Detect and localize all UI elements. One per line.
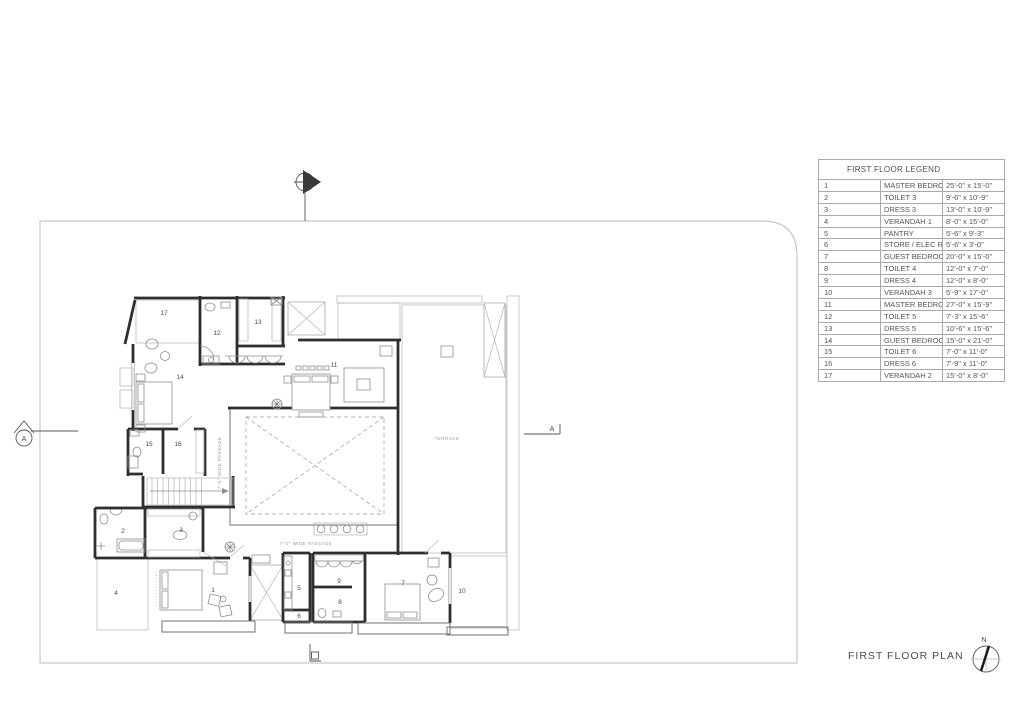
planter-strip-top [337, 296, 482, 303]
room-number: 10 [458, 588, 466, 595]
legend-cell: 11 [819, 298, 881, 310]
wc [133, 447, 141, 457]
legend-cell: PANTRY [881, 227, 943, 239]
armchair [214, 562, 227, 574]
legend-cell: 4 [819, 215, 881, 227]
legend-cell: VERANDAH 2 [881, 370, 943, 382]
legend-cell: DRESS 5 [881, 322, 943, 334]
legend-cell: 20'-0" x 15'-0" [943, 251, 1005, 263]
legend-cell: TOILET 4 [881, 263, 943, 275]
room-number: 2 [121, 528, 125, 535]
north-needle [981, 646, 989, 671]
legend-cell: TOILET 5 [881, 310, 943, 322]
section-marker-right: A [524, 424, 560, 434]
legend-cell: 10'-6" x 15'-6" [943, 322, 1005, 334]
room-number: 5 [297, 585, 301, 592]
wardrobe [148, 509, 200, 516]
legend-row: 3DRESS 313'-0" x 10'-9" [819, 203, 1005, 215]
legend-row: 17VERANDAH 215'-0" x 8'-0" [819, 370, 1005, 382]
passage-label-horizontal: 7'-0" WIDE PASSAGE [280, 541, 333, 546]
chair [380, 346, 392, 356]
legend-cell: 7'-0" x 11'-0" [943, 346, 1005, 358]
legend-row: 2TOILET 39'-6" x 10'-9" [819, 191, 1005, 203]
legend-cell: 27'-0" x 15'-9" [943, 298, 1005, 310]
room-number: 6 [297, 613, 301, 620]
basin [221, 302, 230, 308]
legend-cell: MASTER BEDROOM 3 [881, 180, 943, 192]
wardrobe [196, 430, 204, 473]
plan-title: FIRST FLOOR PLAN [848, 650, 964, 662]
legend-title: FIRST FLOOR LEGEND [819, 160, 1005, 180]
planter-strip-right [507, 296, 519, 630]
wardrobe [239, 299, 248, 341]
legend-cell: 8'-0" x 15'-0" [943, 215, 1005, 227]
basin [130, 430, 139, 436]
north-arrow: N [971, 635, 1001, 673]
lounge-chair [426, 586, 446, 604]
legend-cell: 3 [819, 203, 881, 215]
legend-cell: 8 [819, 263, 881, 275]
section-marker-left: A [14, 421, 78, 446]
wardrobe [315, 555, 363, 561]
verandah-1-deck [97, 558, 148, 630]
legend-cell: VERANDAH 1 [881, 215, 943, 227]
room-number: 9 [337, 578, 341, 585]
bed [385, 584, 420, 620]
basin [333, 611, 341, 617]
legend-row: 14GUEST BEDROOM 215'-0" x 21'-0" [819, 334, 1005, 346]
room-number: 1 [211, 587, 215, 594]
legend-cell: 1 [819, 180, 881, 192]
legend-cell: 5'-9" x 17'-0" [943, 287, 1005, 299]
room-number: 12 [213, 330, 221, 337]
legend-cell: 15'-0" x 8'-0" [943, 370, 1005, 382]
legend-cell: DRESS 6 [881, 358, 943, 370]
room-number: 7 [401, 580, 405, 587]
drawing-sheet: A A [0, 0, 1024, 724]
vanity-basins [225, 356, 283, 363]
legend-cell: TOILET 3 [881, 191, 943, 203]
shower-head [97, 542, 105, 550]
room-number: 11 [331, 362, 338, 369]
legend-row: 15TOILET 67'-0" x 11'-0" [819, 346, 1005, 358]
verandah-2-paving [136, 300, 200, 343]
legend-row: 4VERANDAH 18'-0" x 15'-0" [819, 215, 1005, 227]
legend-cell: 2 [819, 191, 881, 203]
shower-tray [128, 456, 138, 468]
bed-bench [299, 412, 323, 417]
legend-title-row: FIRST FLOOR LEGEND [819, 160, 1005, 180]
legend-cell: 12 [819, 310, 881, 322]
chair [208, 594, 221, 606]
section-marker-top [294, 170, 321, 221]
bed [160, 570, 202, 610]
legend-cell: 7'-3" x 15'-6" [943, 310, 1005, 322]
legend-cell: 9'-6" x 10'-9" [943, 191, 1005, 203]
legend-row: 9DRESS 412'-0" x 8'-0" [819, 275, 1005, 287]
legend-table: FIRST FLOOR LEGEND 1MASTER BEDROOM 325'-… [818, 159, 1005, 382]
legend-cell: 12'-0" x 8'-0" [943, 275, 1005, 287]
legend-row: 11MASTER BEDROOM 427'-0" x 15'-9" [819, 298, 1005, 310]
legend-cell: 6 [819, 239, 881, 251]
legend-cell: 5 [819, 227, 881, 239]
room-number: 3 [179, 527, 183, 534]
hanger-rod [316, 561, 362, 567]
legend-cell: TOILET 6 [881, 346, 943, 358]
room-number: 14 [176, 374, 184, 381]
room-number: 4 [114, 590, 118, 597]
legend-cell: 14 [819, 334, 881, 346]
legend-row: 5PANTRY5'-6" x 9'-3" [819, 227, 1005, 239]
legend-cell: 15 [819, 346, 881, 358]
wc [205, 303, 215, 311]
section-marker-bottom [310, 644, 321, 661]
plan-labels: 7'-0" WIDE PASSAGE 7'-0" WIDE PASSAGE TE… [217, 436, 459, 546]
chair [428, 558, 439, 567]
section-letter-left: A [22, 436, 27, 443]
legend-row: 13DRESS 510'-6" x 15'-6" [819, 322, 1005, 334]
legend-cell: 13'-0" x 10'-9" [943, 203, 1005, 215]
bed [292, 374, 330, 410]
legend-cell: 12'-0" x 7'-0" [943, 263, 1005, 275]
legend-cell: 13 [819, 322, 881, 334]
wall-pier [120, 368, 133, 386]
legend-cell: MASTER BEDROOM 4 [881, 298, 943, 310]
side-table [161, 352, 170, 361]
passage-label-vertical: 7'-0" WIDE PASSAGE [217, 437, 222, 490]
room-number: 16 [174, 441, 182, 448]
skylight-panels [250, 302, 505, 620]
legend-cell: DRESS 4 [881, 275, 943, 287]
terrace-label: TERRACE [435, 436, 460, 441]
legend-cell: GUEST BEDROOM 1 [881, 251, 943, 263]
armchair [145, 363, 157, 373]
section-letter-right: A [550, 426, 555, 433]
terrace-chair [441, 346, 453, 357]
legend-cell: VERANDAH 3 [881, 287, 943, 299]
legend-row: 8TOILET 412'-0" x 7'-0" [819, 263, 1005, 275]
potted-plant [272, 399, 282, 409]
room-number: 13 [254, 319, 262, 326]
legend-cell: 10 [819, 287, 881, 299]
potted-plant [225, 542, 235, 552]
legend-body: FIRST FLOOR LEGEND 1MASTER BEDROOM 325'-… [819, 160, 1005, 382]
stepping-stones [317, 525, 364, 533]
room-number: 15 [145, 441, 153, 448]
room-number: 17 [160, 310, 168, 317]
wc [318, 609, 326, 618]
legend-cell: 7'-9" x 11'-0" [943, 358, 1005, 370]
upper-terrace-paving [338, 303, 400, 340]
wardrobe [148, 550, 200, 557]
legend-row: 6STORE / ELEC ROOM5'-6" x 3'-0" [819, 239, 1005, 251]
legend-cell: 15'-0" x 21'-0" [943, 334, 1005, 346]
north-label: N [981, 635, 986, 644]
wc [100, 514, 108, 524]
legend-cell: 7 [819, 251, 881, 263]
legend-row: 16DRESS 67'-9" x 11'-0" [819, 358, 1005, 370]
courtyard [230, 408, 398, 535]
wall-pier [120, 390, 133, 408]
armchair [146, 339, 158, 349]
bed [136, 382, 172, 424]
legend-row: 12TOILET 57'-3" x 15'-6" [819, 310, 1005, 322]
tv-unit [344, 368, 384, 402]
round-table [427, 575, 437, 585]
legend-cell: 16 [819, 358, 881, 370]
basin [110, 509, 122, 515]
chair [219, 605, 232, 617]
legend-row: 1MASTER BEDROOM 325'-0" x 15'-0" [819, 180, 1005, 192]
pantry-counter [284, 556, 292, 610]
legend-cell: GUEST BEDROOM 2 [881, 334, 943, 346]
legend-row: 10VERANDAH 35'-9" x 17'-0" [819, 287, 1005, 299]
legend-cell: 5'-6" x 3'-0" [943, 239, 1005, 251]
legend-cell: 9 [819, 275, 881, 287]
legend-cell: DRESS 3 [881, 203, 943, 215]
room-number: 8 [338, 599, 342, 606]
legend-row: 7GUEST BEDROOM 120'-0" x 15'-0" [819, 251, 1005, 263]
legend-cell: 17 [819, 370, 881, 382]
legend-cell: 5'-6" x 9'-3" [943, 227, 1005, 239]
legend-cell: STORE / ELEC ROOM [881, 239, 943, 251]
legend-cell: 25'-0" x 15'-0" [943, 180, 1005, 192]
